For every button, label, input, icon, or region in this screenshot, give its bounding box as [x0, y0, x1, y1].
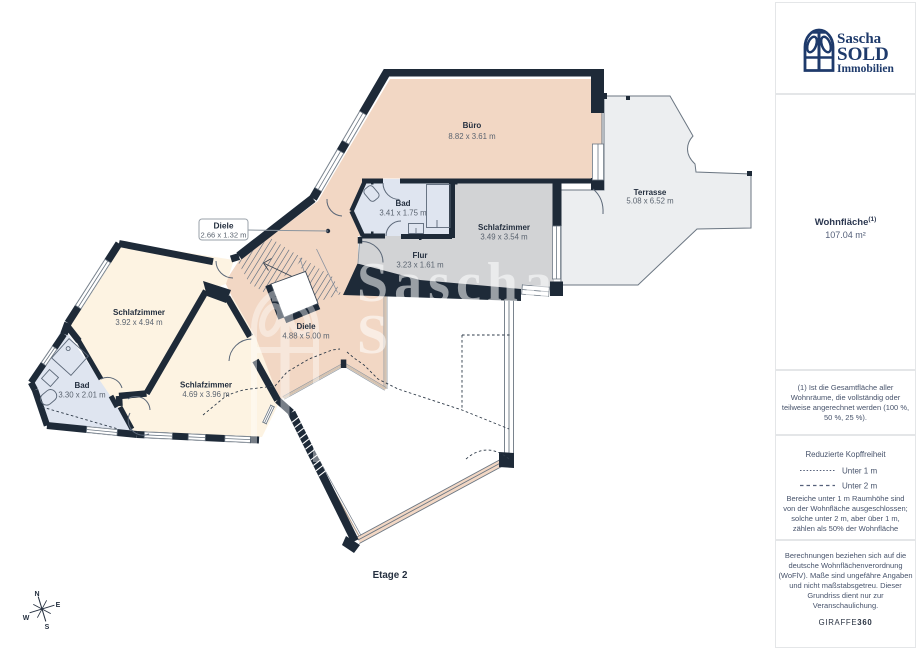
svg-text:Schlafzimmer: Schlafzimmer: [180, 381, 232, 390]
svg-text:Bad: Bad: [395, 199, 410, 208]
svg-text:W: W: [23, 615, 30, 622]
svg-text:2.66 x 1.32 m: 2.66 x 1.32 m: [200, 231, 246, 240]
svg-text:S: S: [45, 624, 50, 631]
svg-text:N: N: [34, 591, 39, 598]
svg-text:Etage 2: Etage 2: [373, 570, 408, 581]
svg-text:Schlafzimmer: Schlafzimmer: [113, 308, 165, 317]
svg-text:8.82 x 3.61 m: 8.82 x 3.61 m: [448, 132, 495, 141]
svg-text:Flur: Flur: [412, 251, 427, 260]
svg-text:Schlafzimmer: Schlafzimmer: [478, 223, 530, 232]
svg-text:4.88 x 5.00 m: 4.88 x 5.00 m: [282, 332, 329, 341]
svg-text:Büro: Büro: [463, 121, 482, 130]
svg-text:4.69 x 3.96 m: 4.69 x 3.96 m: [182, 390, 229, 399]
svg-text:S: S: [357, 304, 388, 366]
svg-text:3.92 x 4.94 m: 3.92 x 4.94 m: [115, 318, 162, 327]
svg-text:5.08 x 6.52 m: 5.08 x 6.52 m: [626, 197, 673, 206]
svg-text:Unter 1 m: Unter 1 m: [842, 467, 877, 476]
svg-text:E: E: [56, 602, 61, 609]
svg-text:3.23 x 1.61 m: 3.23 x 1.61 m: [396, 261, 443, 270]
svg-text:3.49 x 3.54 m: 3.49 x 3.54 m: [480, 233, 527, 242]
svg-text:Diele: Diele: [213, 221, 233, 231]
svg-text:Immobilien: Immobilien: [837, 63, 894, 75]
svg-text:3.30 x 2.01 m: 3.30 x 2.01 m: [58, 391, 105, 400]
svg-text:SOLD: SOLD: [837, 44, 889, 65]
svg-text:Unter 2 m: Unter 2 m: [842, 482, 877, 491]
svg-text:3.41 x 1.75 m: 3.41 x 1.75 m: [379, 209, 426, 218]
svg-text:Bad: Bad: [74, 381, 89, 390]
svg-text:Diele: Diele: [296, 322, 316, 331]
